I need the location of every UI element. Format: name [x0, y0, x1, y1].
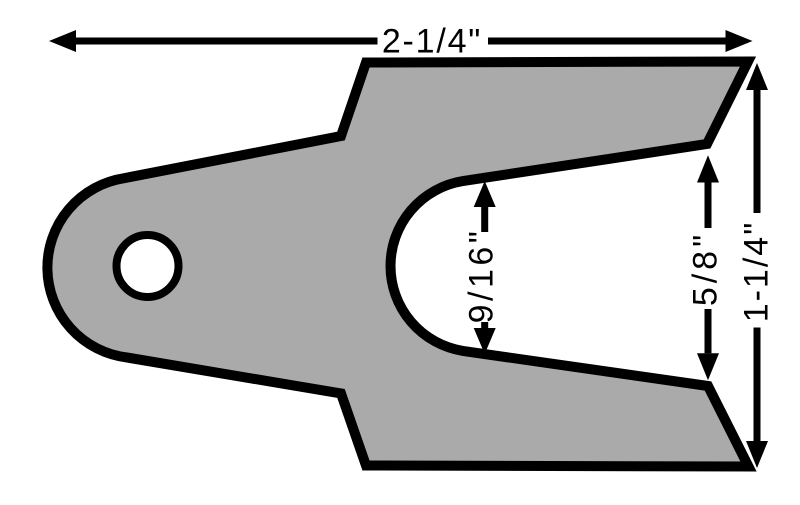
- svg-text:1-1/4": 1-1/4": [738, 221, 776, 323]
- svg-text:5/8": 5/8": [686, 231, 724, 306]
- svg-text:2-1/4": 2-1/4": [382, 23, 482, 61]
- svg-text:9/16": 9/16": [463, 228, 501, 324]
